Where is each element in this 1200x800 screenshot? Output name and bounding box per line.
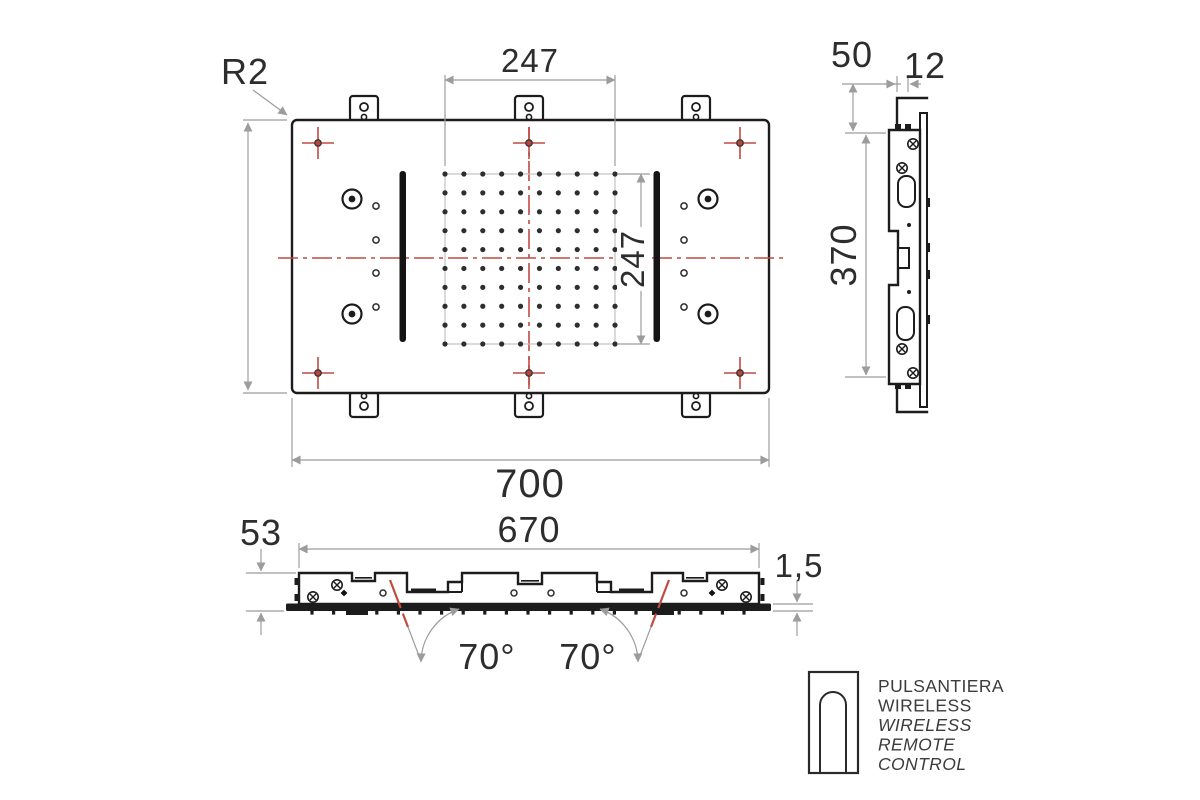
nozzle-dot	[442, 304, 447, 309]
nozzle-tip	[678, 611, 681, 615]
nozzle-dot	[461, 285, 466, 290]
nozzle-dot	[499, 209, 504, 214]
pin-hole	[907, 223, 911, 227]
nozzle-tip	[483, 611, 486, 615]
nozzle-dot	[594, 323, 599, 328]
side-height-label: 370	[823, 223, 864, 286]
nozzle-dot	[556, 209, 561, 214]
nozzle-tip	[634, 611, 637, 615]
tab-hole	[361, 114, 366, 119]
clip-mark	[927, 243, 931, 252]
nozzle-dot	[556, 266, 561, 271]
screw-center	[705, 196, 712, 203]
seal-bar-left	[400, 171, 407, 342]
nozzle-dot	[499, 247, 504, 252]
nozzle-dot	[537, 228, 542, 233]
plate-width-label: 700	[495, 462, 565, 506]
nozzle-dot	[575, 190, 580, 195]
nozzle-tip	[354, 611, 357, 615]
nozzle-dot	[556, 171, 561, 176]
tab-hole	[692, 103, 700, 111]
nozzle-dot	[612, 304, 617, 309]
body-width-label: 670	[497, 509, 560, 550]
nozzle-dot	[518, 209, 523, 214]
crosshair-center	[737, 370, 743, 376]
nozzle-tip	[570, 611, 573, 615]
nozzle-tip	[526, 611, 529, 615]
crosshair-center	[737, 140, 743, 146]
grid-width-label: 247	[501, 42, 559, 79]
small-hole	[681, 237, 687, 243]
angle-arc-left	[421, 609, 459, 662]
screw-center	[349, 311, 356, 318]
nozzle-dot	[480, 209, 485, 214]
nozzle-tip	[397, 611, 400, 615]
nozzle-dot	[518, 304, 523, 309]
nozzle-dot	[480, 341, 485, 346]
nozzle-dot	[594, 228, 599, 233]
tab-hole	[693, 114, 698, 119]
extension-lines	[243, 120, 287, 393]
small-hole	[681, 304, 687, 310]
grid-height-label: 247	[614, 230, 651, 288]
clip-mark	[927, 315, 931, 324]
nozzle-dot	[480, 304, 485, 309]
edge-clip	[295, 578, 299, 585]
front-view: 670 53 1,5 70° 70°	[240, 509, 823, 677]
nozzle-dot	[461, 209, 466, 214]
nozzle-dot	[442, 209, 447, 214]
r2-leader	[253, 90, 287, 115]
edge-screw-mark	[905, 384, 911, 389]
crosshair-center	[315, 140, 321, 146]
tab-hole	[692, 402, 700, 410]
nozzle-dot	[575, 285, 580, 290]
small-hole	[373, 304, 379, 310]
nozzle-dot	[461, 228, 466, 233]
nozzle-dot	[499, 304, 504, 309]
nozzle-dot	[442, 285, 447, 290]
nozzle-dot	[461, 171, 466, 176]
nozzle-dot	[612, 341, 617, 346]
edge-clip	[295, 594, 299, 601]
nozzle-tip	[505, 611, 508, 615]
nozzle-dot	[556, 190, 561, 195]
tab-hole	[526, 393, 531, 398]
small-hole	[548, 590, 554, 596]
tab-hole	[525, 402, 533, 410]
legend-line-1: PULSANTIERA	[878, 676, 1004, 696]
nozzle-dot	[556, 285, 561, 290]
wireless-remote-icon	[809, 672, 858, 773]
small-hole	[681, 203, 687, 209]
tab-hole	[360, 103, 368, 111]
nozzle-dot	[537, 209, 542, 214]
spray-angle-left-label: 70°	[458, 636, 515, 677]
nozzle-dot	[612, 323, 617, 328]
recess-depth-label: 53	[240, 512, 282, 553]
nozzle-tip	[418, 611, 421, 615]
nozzle-dot	[556, 323, 561, 328]
nozzle-dot	[499, 323, 504, 328]
nozzle-dot	[575, 228, 580, 233]
nozzle-dot	[594, 266, 599, 271]
nozzle-dot	[612, 209, 617, 214]
nozzle-dot	[575, 247, 580, 252]
plan-view: R2 247 247 700	[221, 42, 783, 506]
small-hole	[373, 270, 379, 276]
crosshair-center	[315, 370, 321, 376]
nozzle-dot	[480, 228, 485, 233]
nozzle-tip	[462, 611, 465, 615]
nozzle-dot	[537, 247, 542, 252]
nozzle-dot	[575, 209, 580, 214]
nozzle-dot	[556, 341, 561, 346]
legend-line-3: WIRELESS	[878, 715, 972, 735]
nozzle-tip	[721, 611, 724, 615]
nozzle-dot	[499, 228, 504, 233]
nozzle-dot	[461, 190, 466, 195]
edge-clip	[761, 578, 765, 585]
nozzle-dot	[537, 190, 542, 195]
nozzle-dot	[461, 304, 466, 309]
nozzle-dot	[594, 190, 599, 195]
technical-drawing: R2 247 247 700 50 12 370	[0, 0, 1200, 800]
nozzle-dot	[556, 228, 561, 233]
nozzle-dot	[518, 341, 523, 346]
nozzle-dot	[537, 304, 542, 309]
nozzle-dot	[537, 341, 542, 346]
nozzle-dot	[575, 304, 580, 309]
nozzle-dot	[499, 171, 504, 176]
tab-hole	[526, 114, 531, 119]
seal-bar-right	[654, 171, 661, 342]
nozzle-tip	[613, 611, 616, 615]
tab-hole	[360, 402, 368, 410]
nozzle-dot	[442, 190, 447, 195]
plate-thickness-label: 1,5	[775, 547, 824, 584]
nozzle-dot	[480, 171, 485, 176]
nozzle-dot	[461, 266, 466, 271]
legend: PULSANTIERA WIRELESS WIRELESS REMOTE CON…	[809, 672, 1004, 774]
nozzle-dot	[612, 190, 617, 195]
nozzle-dot	[518, 266, 523, 271]
nozzle-dot	[461, 341, 466, 346]
nozzle-dot	[556, 304, 561, 309]
nozzle-dot	[518, 285, 523, 290]
nozzle-dot	[612, 171, 617, 176]
nozzle-dot	[499, 285, 504, 290]
nozzle-dot	[518, 247, 523, 252]
nozzle-dot	[480, 266, 485, 271]
nozzle-dot	[575, 323, 580, 328]
nozzle-dot	[594, 341, 599, 346]
nozzle-dot	[537, 266, 542, 271]
corner-radius-label: R2	[221, 51, 269, 92]
nozzle-dot	[594, 171, 599, 176]
edge-clip	[761, 594, 765, 601]
small-hole	[380, 590, 386, 596]
crosshair-center	[526, 140, 532, 146]
nozzle-dot	[537, 285, 542, 290]
nozzle-dot	[575, 341, 580, 346]
nozzle-dot	[499, 266, 504, 271]
connector-tab	[898, 248, 909, 268]
small-hole	[681, 590, 687, 596]
screw-center	[705, 311, 712, 318]
clip-mark	[927, 198, 931, 207]
nozzle-dot	[594, 304, 599, 309]
nozzle-dot	[442, 171, 447, 176]
nozzle-dot	[499, 341, 504, 346]
nozzle-tip	[375, 611, 378, 615]
tab-hole	[525, 103, 533, 111]
drawing-page: R2 247 247 700 50 12 370	[0, 0, 1200, 800]
plate-outline	[292, 120, 769, 393]
nozzle-tip	[332, 611, 335, 615]
pin-hole	[907, 290, 911, 294]
nozzle-dot	[442, 266, 447, 271]
edge-screw-mark	[905, 124, 911, 129]
side-view: 50 12 370	[823, 34, 946, 412]
legend-line-4: REMOTE	[878, 735, 955, 755]
slot-mark	[619, 589, 644, 593]
nozzle-dot	[537, 323, 542, 328]
nozzle-dot	[518, 190, 523, 195]
clip-tab	[346, 611, 368, 615]
nozzle-dot	[461, 247, 466, 252]
nozzle-tip	[440, 611, 443, 615]
spray-angle-right-label: 70°	[559, 636, 616, 677]
nozzle-dot	[461, 323, 466, 328]
nozzle-dot	[442, 323, 447, 328]
flange-offset-label: 50	[831, 34, 873, 75]
edge-screw-mark	[895, 124, 901, 129]
hook-width-label: 12	[904, 45, 946, 86]
nozzle-dot	[518, 228, 523, 233]
nozzle-tip	[548, 611, 551, 615]
crosshair-center	[526, 370, 532, 376]
nozzle-dot	[442, 247, 447, 252]
edge-screw-mark	[895, 384, 901, 389]
small-hole	[511, 590, 517, 596]
nozzle-dot	[575, 171, 580, 176]
nozzle-dot	[594, 209, 599, 214]
nozzle-dot	[518, 323, 523, 328]
nozzle-tip	[591, 611, 594, 615]
clip-mark	[927, 270, 931, 279]
nozzle-dot	[499, 190, 504, 195]
extension-lines	[773, 604, 813, 611]
nozzle-dot	[594, 247, 599, 252]
tab-hole	[693, 393, 698, 398]
small-hole	[373, 203, 379, 209]
screw-center	[349, 196, 356, 203]
nozzle-dot	[442, 341, 447, 346]
nozzle-dot	[442, 228, 447, 233]
legend-line-5: CONTROL	[878, 754, 966, 774]
nozzle-dot	[480, 190, 485, 195]
tab-hole	[361, 393, 366, 398]
base-plate	[286, 604, 771, 612]
nozzle-tip	[699, 611, 702, 615]
small-hole	[373, 237, 379, 243]
slot-mark	[411, 589, 436, 593]
legend-line-2: WIRELESS	[878, 696, 972, 716]
small-hole	[681, 270, 687, 276]
nozzle-dot	[480, 247, 485, 252]
nozzle-dot	[556, 247, 561, 252]
nozzle-dot	[518, 171, 523, 176]
nozzle-tip	[742, 611, 745, 615]
nozzle-dot	[480, 323, 485, 328]
nozzle-dot	[480, 285, 485, 290]
nozzle-tip	[310, 611, 313, 615]
nozzle-dot	[594, 285, 599, 290]
nozzle-dot	[537, 171, 542, 176]
nozzle-dot	[575, 266, 580, 271]
